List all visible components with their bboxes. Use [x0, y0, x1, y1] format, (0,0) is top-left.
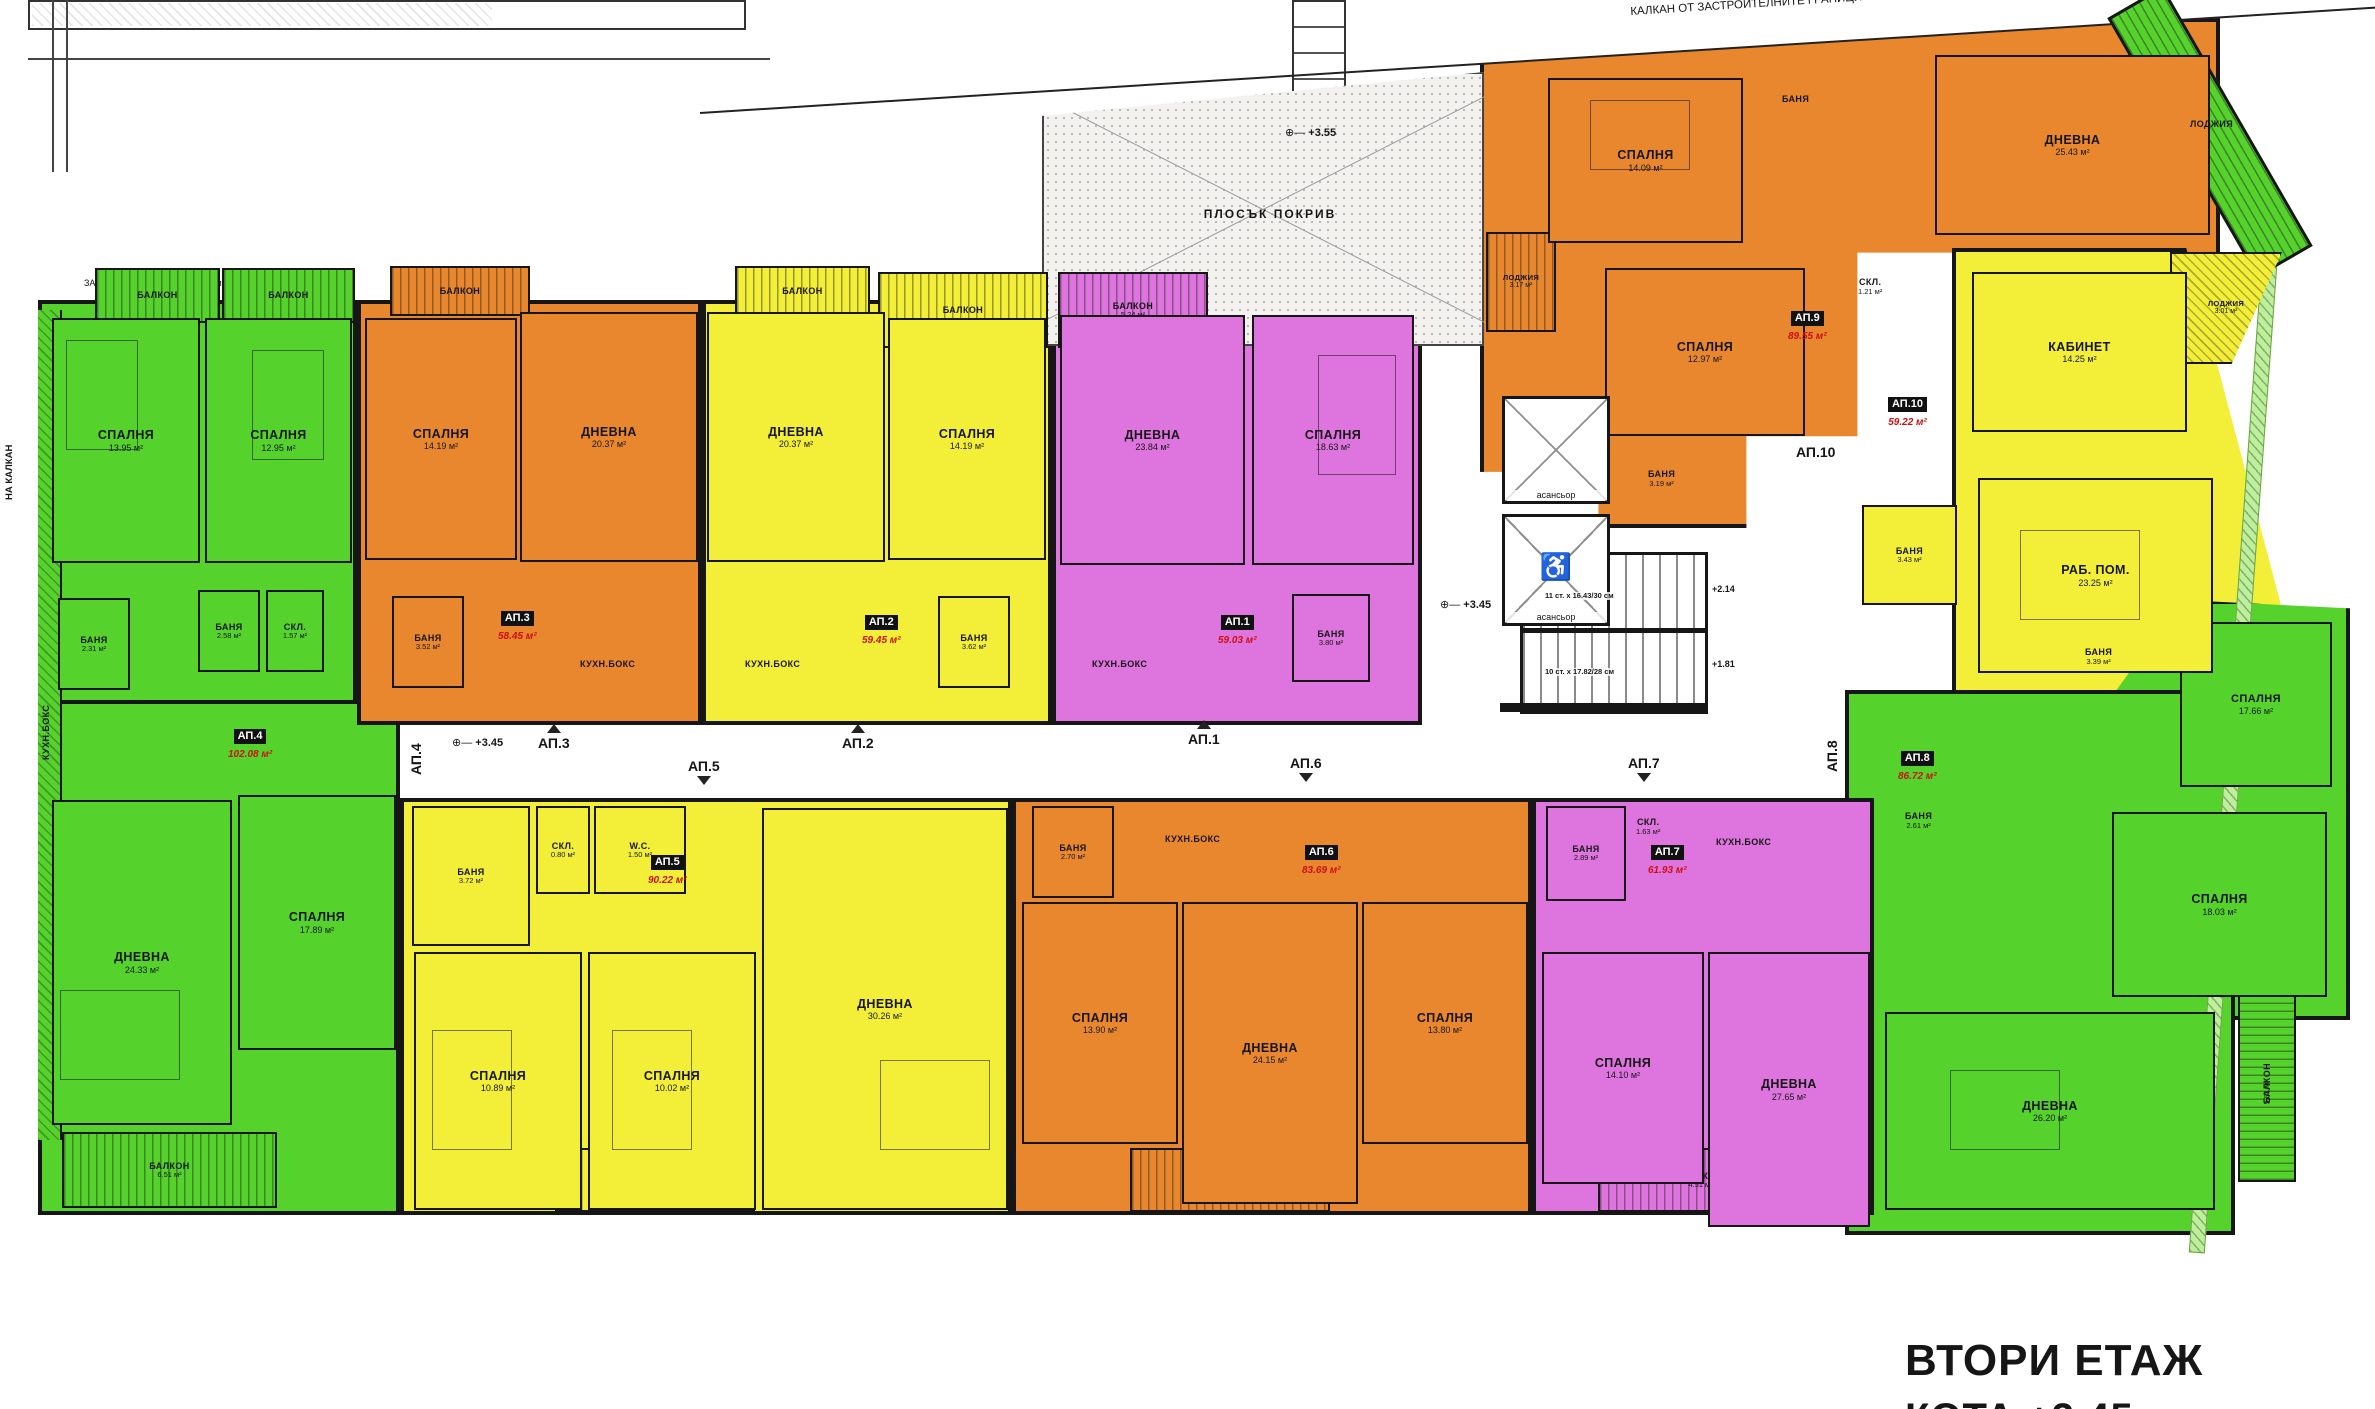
room: СПАЛНЯ18.03 м²: [2112, 812, 2327, 997]
room: ДНЕВНА25.43 м²: [1935, 55, 2210, 235]
apartment-badge: АП.259.45 м²: [862, 612, 901, 649]
room-label: КУХН.БОКС: [1716, 838, 1771, 848]
apartment-ref-label: АП.2: [842, 724, 874, 751]
apartment-badge: АП.683.69 м²: [1302, 842, 1341, 879]
room: СПАЛНЯ12.97 м²: [1605, 268, 1805, 436]
room: БАНЯ3.62 м²: [938, 596, 1010, 688]
room: БАНЯ3.72 м²: [412, 806, 530, 946]
core-base-wall: [1500, 703, 1705, 712]
room: БАНЯ3.80 м²: [1292, 594, 1370, 682]
room: БАНЯ2.58 м²: [198, 590, 260, 672]
room: СКЛ.1.57 м²: [266, 590, 324, 672]
balcony: БАЛКОН: [95, 268, 220, 323]
furniture-outline: [2020, 530, 2140, 620]
elevator-label: асансьор: [1505, 612, 1607, 622]
furniture-outline: [1318, 355, 1396, 475]
room: ДНЕВНА24.15 м²: [1182, 902, 1358, 1204]
room-label: ЛОДЖИЯ: [2190, 120, 2233, 130]
stair-level: +2.14: [1712, 585, 1735, 595]
furniture-outline: [612, 1030, 692, 1150]
stair-landing-line: [1520, 628, 1708, 633]
furniture-outline: [60, 990, 180, 1080]
room: БАНЯ2.31 м²: [58, 598, 130, 690]
apartment-badge: АП.4102.08 м²: [228, 726, 272, 763]
room: БАНЯ3.43 м²: [1862, 505, 1957, 605]
floor-level-subtitle: КОТА +3.45: [1905, 1396, 2134, 1409]
room-label: КУХН.БОКС: [42, 705, 52, 760]
roof-level-mark: +3.55: [1285, 126, 1336, 139]
room: СПАЛНЯ14.19 м²: [365, 318, 517, 560]
stair-note: 11 ст. х 16.43/30 см: [1545, 592, 1614, 600]
apartment-ref-label: АП.5: [688, 758, 720, 785]
room: БАНЯ2.89 м²: [1546, 806, 1626, 901]
apartment-ref-label: АП.4: [408, 743, 424, 775]
apartment-badge: АП.886.72 м²: [1898, 748, 1937, 785]
flat-roof-label: ПЛОСЪК ПОКРИВ: [1180, 208, 1360, 221]
furniture-outline: [252, 350, 324, 460]
room-label: КУХН.БОКС: [745, 660, 800, 670]
furniture-outline: [1590, 100, 1690, 170]
kalkan-left-note: НА КАЛКАН: [4, 445, 15, 500]
apartment-badge: АП.358.45 м²: [498, 608, 537, 645]
apartment-ref-label: АП.10: [1796, 444, 1835, 460]
apartment-badge: АП.159.03 м²: [1218, 612, 1257, 649]
room: ДНЕВНА20.37 м²: [520, 312, 698, 562]
room: СПАЛНЯ14.19 м²: [888, 318, 1046, 560]
balcony: БАЛКОН6.51 м²: [62, 1132, 277, 1208]
room: БАНЯ2.70 м²: [1032, 806, 1114, 898]
furniture-outline: [1950, 1070, 2060, 1150]
room: СПАЛНЯ13.80 м²: [1362, 902, 1528, 1144]
apartment-badge: АП.761.93 м²: [1648, 842, 1687, 879]
room: СПАЛНЯ17.89 м²: [238, 795, 396, 1050]
corridor-level-mark: +3.45: [452, 736, 503, 749]
balcony: БАЛКОН 5.81 м²: [2238, 992, 2296, 1182]
room-label: БАНЯ: [1782, 95, 1809, 105]
room: СКЛ.0.80 м²: [536, 806, 590, 894]
room-label: КУХН.БОКС: [1092, 660, 1147, 670]
stair-level: +1.81: [1712, 660, 1735, 670]
apartment-ref-label: АП.8: [1824, 740, 1840, 772]
room: СПАЛНЯ13.90 м²: [1022, 902, 1178, 1144]
apartment-badge: АП.590.22 м²: [648, 852, 687, 889]
room-label: СКЛ.1.21 м²: [1858, 278, 1882, 296]
elevator-label: асансьор: [1505, 490, 1607, 500]
wheelchair-icon: ♿: [1540, 551, 1572, 582]
room-label: БАНЯ3.19 м²: [1648, 470, 1675, 488]
apartment-ref-label: АП.1: [1188, 720, 1220, 747]
apartment-badge: АП.989.55 м²: [1788, 308, 1827, 345]
apartment-ref-label: АП.7: [1628, 755, 1660, 782]
apartment-ref-label: АП.6: [1290, 755, 1322, 782]
furniture-outline: [66, 340, 138, 450]
room-label: КУХН.БОКС: [580, 660, 635, 670]
elevator-shaft: асансьор: [1502, 396, 1610, 504]
balcony: БАЛКОН: [735, 266, 870, 316]
room: ДНЕВНА20.37 м²: [707, 312, 885, 562]
floor-plan-canvas: КАЛКАН ОТ ЗАСТРОИТЕЛНИТЕ ГРАНИЦИ ЗАСТРОИ…: [0, 0, 2375, 1409]
room-label: БАНЯ3.39 м²: [2085, 648, 2112, 666]
core-level-mark: +3.45: [1440, 598, 1491, 611]
room-label: КУХН.БОКС: [1165, 835, 1220, 845]
upper-floor-wall: [52, 0, 68, 172]
property-line: [28, 58, 770, 60]
balcony: БАЛКОН: [222, 268, 355, 323]
room: БАНЯ3.52 м²: [392, 596, 464, 688]
room: КАБИНЕТ14.25 м²: [1972, 272, 2187, 432]
stair-note: 10 ст. х 17.82/28 см: [1545, 668, 1614, 676]
room-label: БАНЯ2.61 м²: [1905, 812, 1932, 830]
room: ДНЕВНА27.65 м²: [1708, 952, 1870, 1227]
furniture-outline: [432, 1030, 512, 1150]
loggia: ЛОДЖИЯ 3.17 м²: [1486, 232, 1556, 332]
upper-floor-strip-fill: [32, 3, 492, 26]
room: ДНЕВНА23.84 м²: [1060, 315, 1245, 565]
floor-title: ВТОРИ ЕТАЖ: [1905, 1336, 2203, 1386]
room: СПАЛНЯ14.10 м²: [1542, 952, 1704, 1184]
elevator-shaft-accessible: ♿ асансьор: [1502, 514, 1610, 626]
apartment-ref-label: АП.3: [538, 724, 570, 751]
balcony: БАЛКОН: [390, 266, 530, 316]
room-label: СКЛ.1.63 м²: [1636, 818, 1660, 836]
kalkan-note: КАЛКАН ОТ ЗАСТРОИТЕЛНИТЕ ГРАНИЦИ: [1630, 0, 2010, 18]
furniture-outline: [880, 1060, 990, 1150]
apartment-badge: АП.1059.22 м²: [1888, 394, 1927, 431]
